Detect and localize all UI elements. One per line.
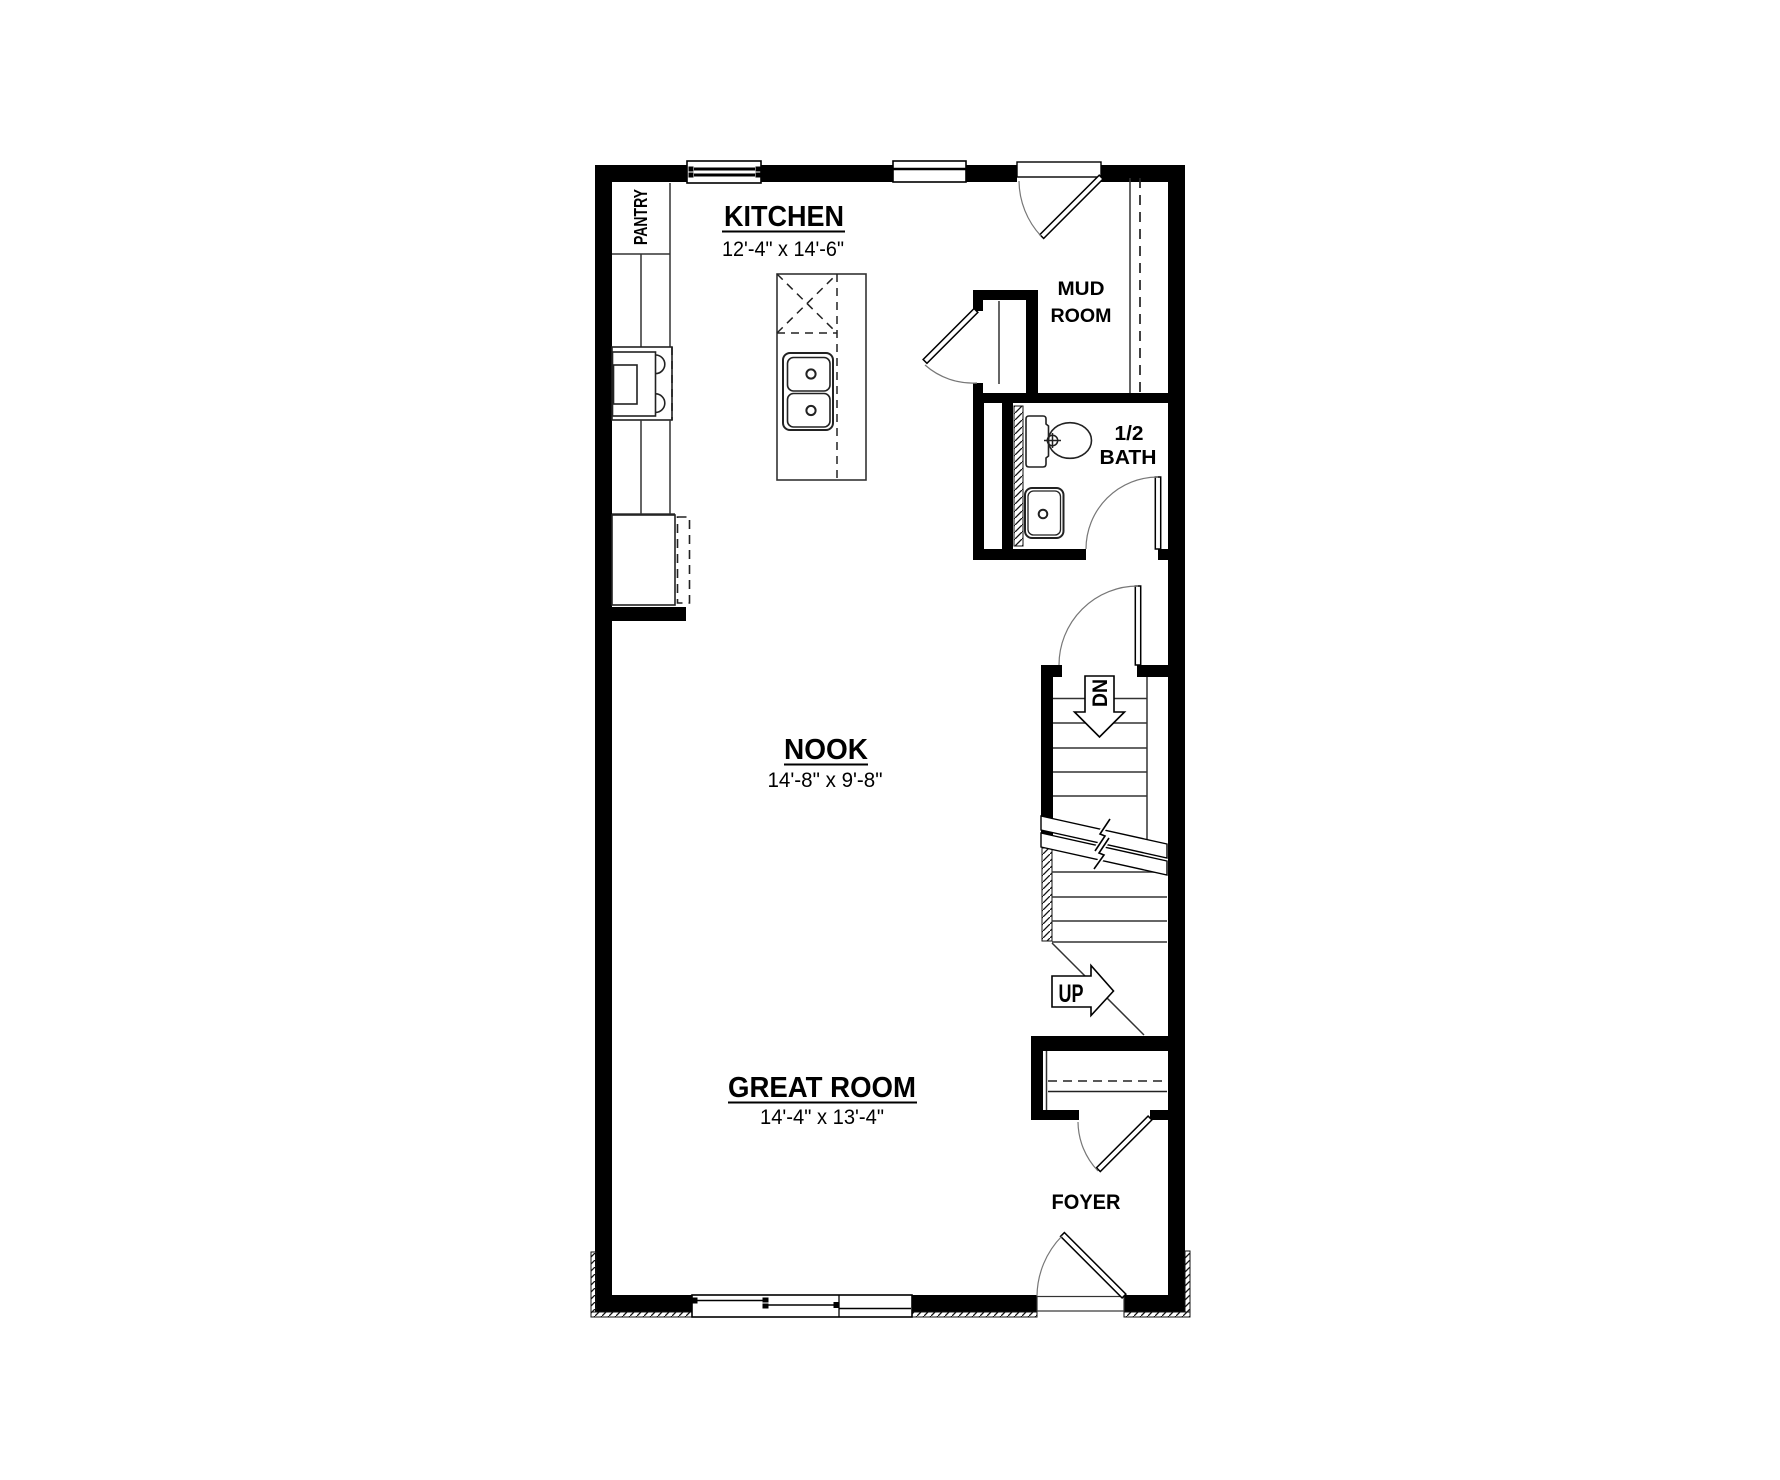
svg-text:KITCHEN: KITCHEN (724, 201, 844, 233)
svg-text:1/2: 1/2 (1115, 423, 1144, 445)
svg-text:UP: UP (1059, 980, 1084, 1008)
svg-text:NOOK: NOOK (784, 734, 868, 766)
svg-text:12'-4" x 14'-6": 12'-4" x 14'-6" (722, 238, 844, 261)
svg-text:14'-4" x 13'-4": 14'-4" x 13'-4" (760, 1106, 884, 1129)
svg-text:MUD: MUD (1058, 279, 1105, 300)
svg-text:GREAT ROOM: GREAT ROOM (728, 1072, 916, 1104)
svg-text:14'-8" x 9'-8": 14'-8" x 9'-8" (768, 769, 883, 792)
svg-text:DN: DN (1089, 679, 1112, 707)
svg-text:BATH: BATH (1100, 447, 1157, 469)
svg-text:ROOM: ROOM (1051, 306, 1112, 327)
svg-text:PANTRY: PANTRY (631, 189, 651, 245)
svg-text:FOYER: FOYER (1052, 1191, 1121, 1214)
